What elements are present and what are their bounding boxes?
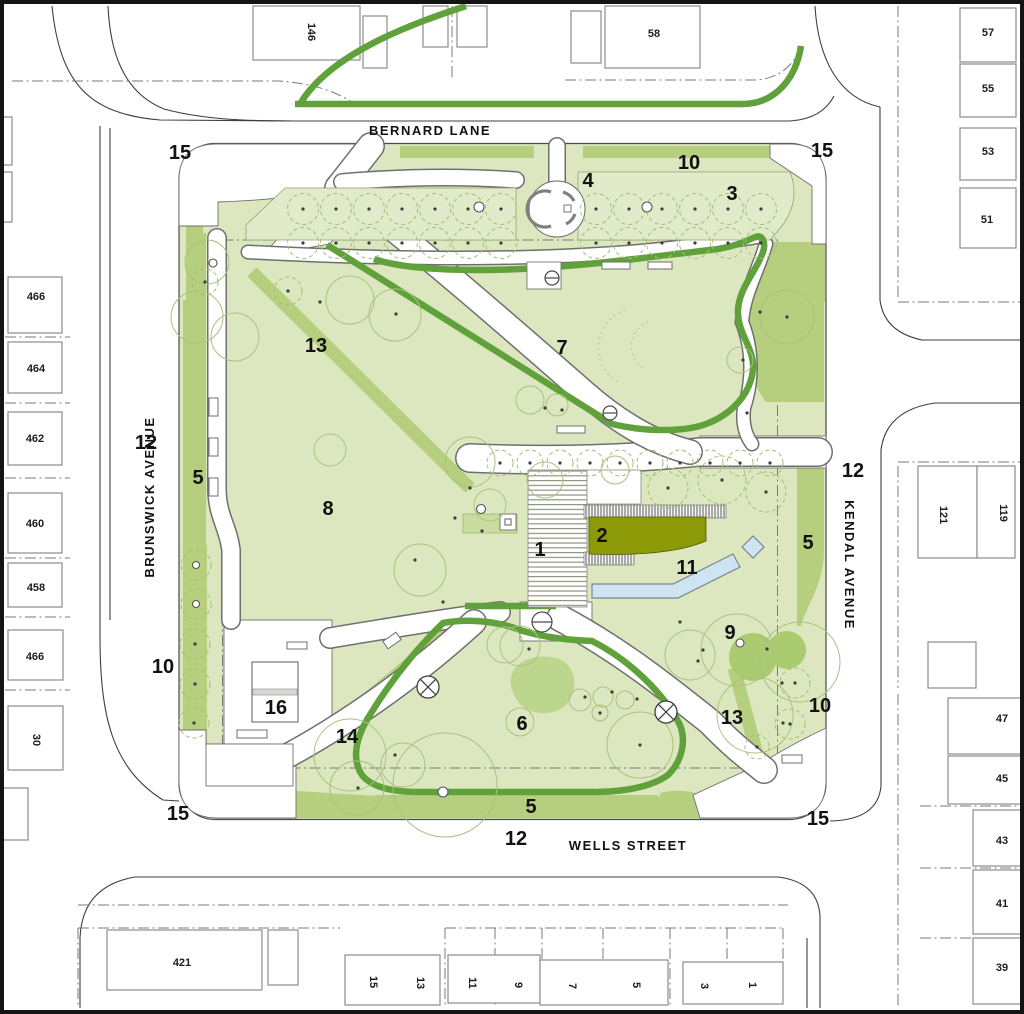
building-number: 466	[27, 291, 45, 303]
area-label-10-top: 10	[678, 152, 700, 174]
building-number: 55	[982, 83, 994, 95]
building-number: 41	[996, 898, 1008, 910]
building-number: 9	[512, 982, 524, 988]
tree-trunk-dot	[558, 461, 561, 464]
building-number: 43	[996, 835, 1008, 847]
area-label-14: 14	[336, 726, 359, 748]
bench-icon	[209, 478, 218, 496]
tree-trunk-dot	[318, 300, 321, 303]
building-footprint	[8, 277, 62, 333]
specimen-tree-icon	[477, 505, 486, 514]
tree-trunk-dot	[334, 241, 337, 244]
tree-trunk-dot	[543, 406, 546, 409]
bench-icon	[602, 262, 630, 269]
area-label-15-ne: 15	[811, 140, 833, 162]
tree-trunk-dot	[193, 642, 196, 645]
tree-trunk-dot	[499, 241, 502, 244]
area-label-16: 16	[265, 697, 287, 719]
tree-trunk-dot	[785, 315, 788, 318]
tree-trunk-dot	[788, 722, 791, 725]
building-number: 58	[648, 28, 660, 40]
street-name-wells: WELLS STREET	[569, 838, 687, 853]
bench-icon	[209, 438, 218, 456]
building-number: 464	[27, 363, 46, 375]
tree-trunk-dot	[708, 461, 711, 464]
area-label-15-nw: 15	[169, 142, 191, 164]
tree-trunk-dot	[793, 681, 796, 684]
bench-icon	[237, 730, 267, 738]
tree-trunk-dot	[499, 207, 502, 210]
building-number: 5	[630, 982, 642, 988]
tree-trunk-dot	[638, 743, 641, 746]
tree-trunk-dot	[618, 461, 621, 464]
street-width-label: 12	[842, 460, 864, 482]
building-number: 51	[981, 214, 993, 226]
tree-trunk-dot	[701, 648, 704, 651]
specimen-tree-icon	[474, 202, 484, 212]
specimen-tree-icon	[193, 601, 200, 608]
tree-trunk-dot	[666, 486, 669, 489]
tree-trunk-dot	[594, 241, 597, 244]
bench-icon	[209, 398, 218, 416]
tree-trunk-dot	[627, 241, 630, 244]
area-label-5-south: 5	[525, 796, 536, 818]
area-label-8: 8	[322, 498, 333, 520]
street-width-label: 12	[505, 828, 527, 850]
building-number: 421	[173, 957, 191, 969]
building-footprint	[683, 962, 783, 1004]
tree-trunk-dot	[560, 408, 563, 411]
tree-trunk-dot	[594, 207, 597, 210]
tree-trunk-dot	[367, 241, 370, 244]
circular-plaza	[529, 181, 585, 237]
tree-trunk-dot	[635, 697, 638, 700]
tree-trunk-dot	[301, 207, 304, 210]
building-footprint	[948, 756, 1022, 804]
tree-trunk-dot	[527, 647, 530, 650]
building-number: 121	[937, 506, 949, 524]
tree-trunk-dot	[433, 241, 436, 244]
area-label-5-west: 5	[192, 467, 203, 489]
tree-trunk-dot	[726, 207, 729, 210]
street-name-kendal: KENDAL AVENUE	[842, 500, 857, 630]
tree-trunk-dot	[759, 241, 762, 244]
building-footprint	[448, 955, 540, 1003]
area-label-9: 9	[724, 622, 735, 644]
tree-trunk-dot	[433, 207, 436, 210]
building-number: 53	[982, 146, 994, 158]
tree-trunk-dot	[193, 682, 196, 685]
area-label-13-se: 13	[721, 707, 743, 729]
area-label-11: 11	[676, 557, 697, 579]
area-label-1: 1	[534, 539, 545, 561]
tree-trunk-dot	[648, 461, 651, 464]
specimen-tree-icon	[642, 202, 652, 212]
area-label-10-se: 10	[809, 695, 831, 717]
area-label-3: 3	[726, 183, 737, 205]
tree-trunk-dot	[627, 207, 630, 210]
tree-trunk-dot	[720, 478, 723, 481]
building-number: 39	[996, 962, 1008, 974]
tree-trunk-dot	[468, 486, 471, 489]
tree-trunk-dot	[356, 786, 359, 789]
tree-trunk-dot	[466, 207, 469, 210]
tree-trunk-dot	[393, 753, 396, 756]
tree-trunk-dot	[367, 207, 370, 210]
area-label-15-sw: 15	[167, 803, 189, 825]
tree-trunk-dot	[755, 745, 758, 748]
building-number: 15	[367, 976, 379, 988]
building-number: 57	[982, 27, 994, 39]
tree-trunk-dot	[498, 461, 501, 464]
building-number: 146	[305, 23, 317, 41]
building-number: 11	[466, 977, 478, 989]
tree-trunk-dot	[741, 358, 744, 361]
building-footprint	[268, 930, 298, 985]
area-label-10-west: 10	[152, 656, 174, 678]
tree-trunk-dot	[696, 659, 699, 662]
specimen-tree-icon	[438, 787, 448, 797]
bench-icon	[648, 262, 672, 269]
area-label-15-se: 15	[807, 808, 829, 830]
tree-trunk-dot	[286, 289, 289, 292]
area-label-7: 7	[556, 337, 567, 359]
area-label-2: 2	[596, 525, 607, 547]
tree-trunk-dot	[759, 207, 762, 210]
building-number: 458	[27, 582, 45, 594]
tree-trunk-dot	[301, 241, 304, 244]
building-footprint	[0, 788, 28, 840]
tree-trunk-dot	[413, 558, 416, 561]
tree-trunk-dot	[441, 600, 444, 603]
site-plan-drawing: BERNARD LANE WELLS STREET BRUNSWICK AVEN…	[0, 0, 1024, 1014]
building-number: 119	[997, 504, 1009, 522]
specimen-tree-icon	[209, 259, 217, 267]
tree-trunk-dot	[745, 411, 748, 414]
building-footprint	[571, 11, 601, 63]
tree-trunk-dot	[765, 647, 768, 650]
tree-trunk-dot	[203, 280, 206, 283]
planted-mound	[768, 631, 806, 669]
tree-trunk-dot	[400, 207, 403, 210]
building-number: 462	[26, 433, 44, 445]
building-footprint	[948, 698, 1022, 754]
tree-trunk-dot	[758, 310, 761, 313]
building-number: 3	[698, 983, 710, 989]
building-number: 45	[996, 773, 1008, 785]
tree-trunk-dot	[693, 207, 696, 210]
tree-trunk-dot	[781, 721, 784, 724]
area-label-4: 4	[582, 170, 594, 192]
building-number: 13	[414, 977, 426, 989]
building-number: 30	[30, 734, 42, 746]
tree-trunk-dot	[768, 461, 771, 464]
building-number: 460	[26, 518, 44, 530]
bench-icon	[287, 642, 307, 649]
pergola	[584, 505, 726, 518]
tree-trunk-dot	[598, 711, 601, 714]
tree-trunk-dot	[660, 241, 663, 244]
tree-trunk-dot	[400, 241, 403, 244]
tree-trunk-dot	[394, 312, 397, 315]
bench-icon	[557, 426, 585, 433]
bench-icon	[782, 755, 802, 763]
specimen-tree-icon	[736, 639, 744, 647]
tree-trunk-dot	[528, 461, 531, 464]
tree-trunk-dot	[480, 529, 483, 532]
area-label-13: 13	[305, 335, 327, 357]
area-label-6: 6	[516, 713, 527, 735]
building-number: 47	[996, 713, 1008, 725]
tree-trunk-dot	[610, 690, 613, 693]
tree-trunk-dot	[780, 681, 783, 684]
tree-trunk-dot	[678, 620, 681, 623]
tree-trunk-dot	[583, 695, 586, 698]
building-number: 466	[26, 651, 44, 663]
tree-trunk-dot	[466, 241, 469, 244]
street-width-label: 12	[135, 432, 157, 454]
building-footprint	[928, 642, 976, 688]
tree-trunk-dot	[588, 461, 591, 464]
tree-trunk-dot	[453, 516, 456, 519]
specimen-tree-icon	[193, 562, 200, 569]
tree-trunk-dot	[334, 207, 337, 210]
tree-trunk-dot	[192, 721, 195, 724]
tree-trunk-dot	[738, 461, 741, 464]
tree-trunk-dot	[660, 207, 663, 210]
tree-trunk-dot	[764, 490, 767, 493]
street-name-bernard: BERNARD LANE	[369, 123, 491, 138]
area-label-5-east: 5	[802, 532, 813, 554]
tree-trunk-dot	[726, 241, 729, 244]
plaza-marker	[564, 205, 571, 212]
tree-trunk-dot	[678, 461, 681, 464]
tree-trunk-dot	[693, 241, 696, 244]
building-footprint	[540, 960, 668, 1005]
building-number: 1	[746, 982, 758, 988]
site-plan: BERNARD LANE WELLS STREET BRUNSWICK AVEN…	[0, 0, 1024, 1014]
building-footprint	[457, 6, 487, 47]
building-number: 7	[566, 983, 578, 989]
